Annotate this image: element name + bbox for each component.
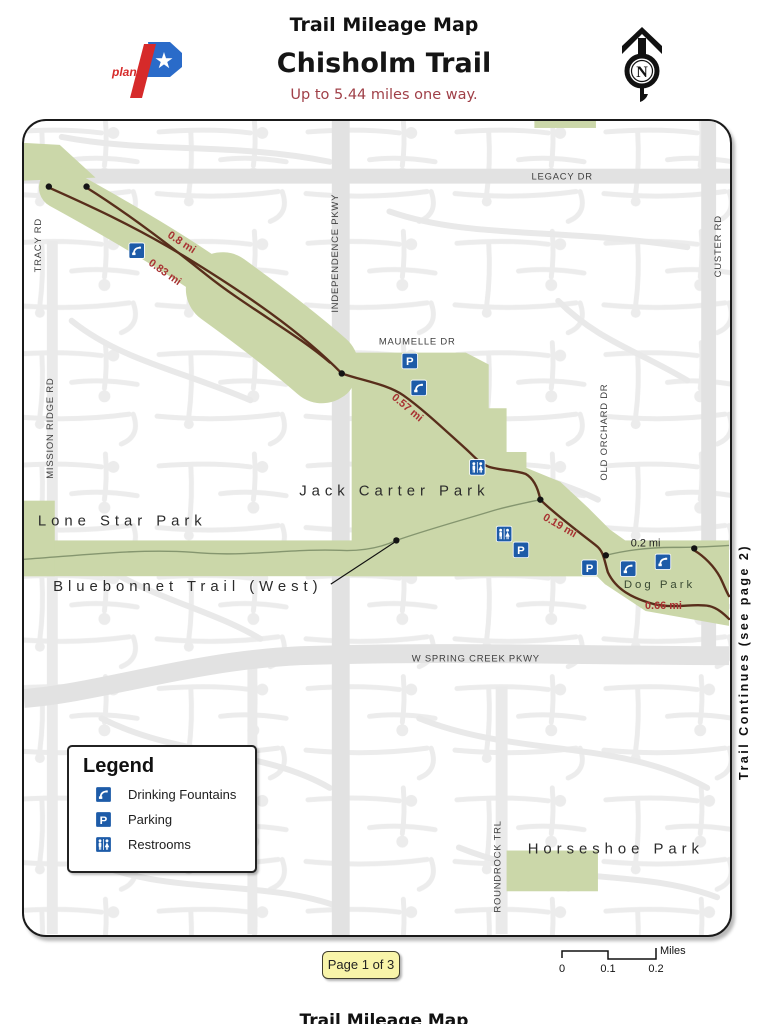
trail-map-page: P Trail Mileage Map Chisholm Trail Up to…	[0, 0, 768, 1024]
street-label-mission-ridge: MISSION RIDGE RD	[44, 377, 55, 478]
street-label-roundrock: ROUNDROCK TRL	[492, 820, 503, 912]
parking-icon	[402, 353, 418, 369]
restroom-icon	[470, 460, 486, 476]
drinking-fountain-icon	[411, 380, 427, 396]
park-label-dog-park: Dog Park	[624, 579, 695, 591]
park-label-lone-star: Lone Star Park	[38, 514, 207, 530]
trail-continues-note: Trail Continues (see page 2)	[737, 544, 751, 780]
legend-item-label: Parking	[128, 812, 172, 827]
lone-star-park-area	[24, 501, 55, 577]
next-page-title-clipped: Trail Mileage Map	[0, 1011, 768, 1024]
park-label-horseshoe: Horseshoe Park	[528, 841, 704, 857]
drinking-fountain-icon	[129, 243, 145, 259]
park-label-jack-carter: Jack Carter Park	[299, 484, 489, 500]
legend-title: Legend	[83, 755, 255, 778]
legend-item: Parking	[95, 811, 255, 828]
plano-city-logo: ★ plano	[110, 36, 200, 102]
street-label-old-orchard: OLD ORCHARD DR	[598, 384, 609, 481]
drinking-fountain-icon	[655, 554, 671, 570]
street-label-tracy: TRACY RD	[32, 218, 43, 272]
parking-icon	[582, 560, 598, 576]
north-compass-icon: N	[612, 26, 672, 106]
trail-label-bluebonnet: Bluebonnet Trail (West)	[53, 579, 322, 595]
scale-tick-label: 0.1	[600, 963, 615, 975]
compass-n-letter: N	[636, 64, 648, 81]
logo-star: ★	[154, 48, 174, 73]
street-label-maumelle: MAUMELLE DR	[379, 336, 456, 347]
restroom-icon	[496, 526, 512, 542]
mileage-label: 0.66 mi	[645, 600, 682, 612]
road-legacy-dr	[24, 169, 730, 184]
parking-icon	[513, 542, 529, 558]
legend-item-label: Restrooms	[128, 837, 191, 852]
scale-unit-label: Miles	[660, 945, 686, 957]
scale-bar: 0 0.1 0.2 Miles	[552, 944, 722, 978]
street-label-independence: INDEPENDENCE PKWY	[329, 194, 340, 313]
street-label-legacy: LEGACY DR	[531, 171, 592, 182]
legend-item: Drinking Fountains	[95, 786, 255, 803]
restroom-icon	[95, 836, 112, 853]
legend-item-label: Drinking Fountains	[128, 787, 236, 802]
parking-icon	[95, 811, 112, 828]
street-label-spring-creek: W SPRING CREEK PKWY	[412, 653, 540, 664]
scale-tick-label: 0.2	[648, 963, 663, 975]
logo-wordmark: plano	[111, 65, 144, 79]
street-label-custer: CUSTER RD	[712, 215, 723, 277]
scale-tick-label: 0	[559, 963, 565, 975]
green-top-sliver	[534, 121, 596, 128]
legend-box: Legend Drinking Fountains Parking Restro…	[67, 745, 257, 873]
scale-bar-line	[562, 948, 656, 959]
drinking-fountain-icon	[620, 561, 636, 577]
drinking-fountain-icon	[95, 786, 112, 803]
mileage-label: 0.2 mi	[631, 537, 661, 549]
legend-item: Restrooms	[95, 836, 255, 853]
page-indicator: Page 1 of 3	[322, 951, 400, 979]
